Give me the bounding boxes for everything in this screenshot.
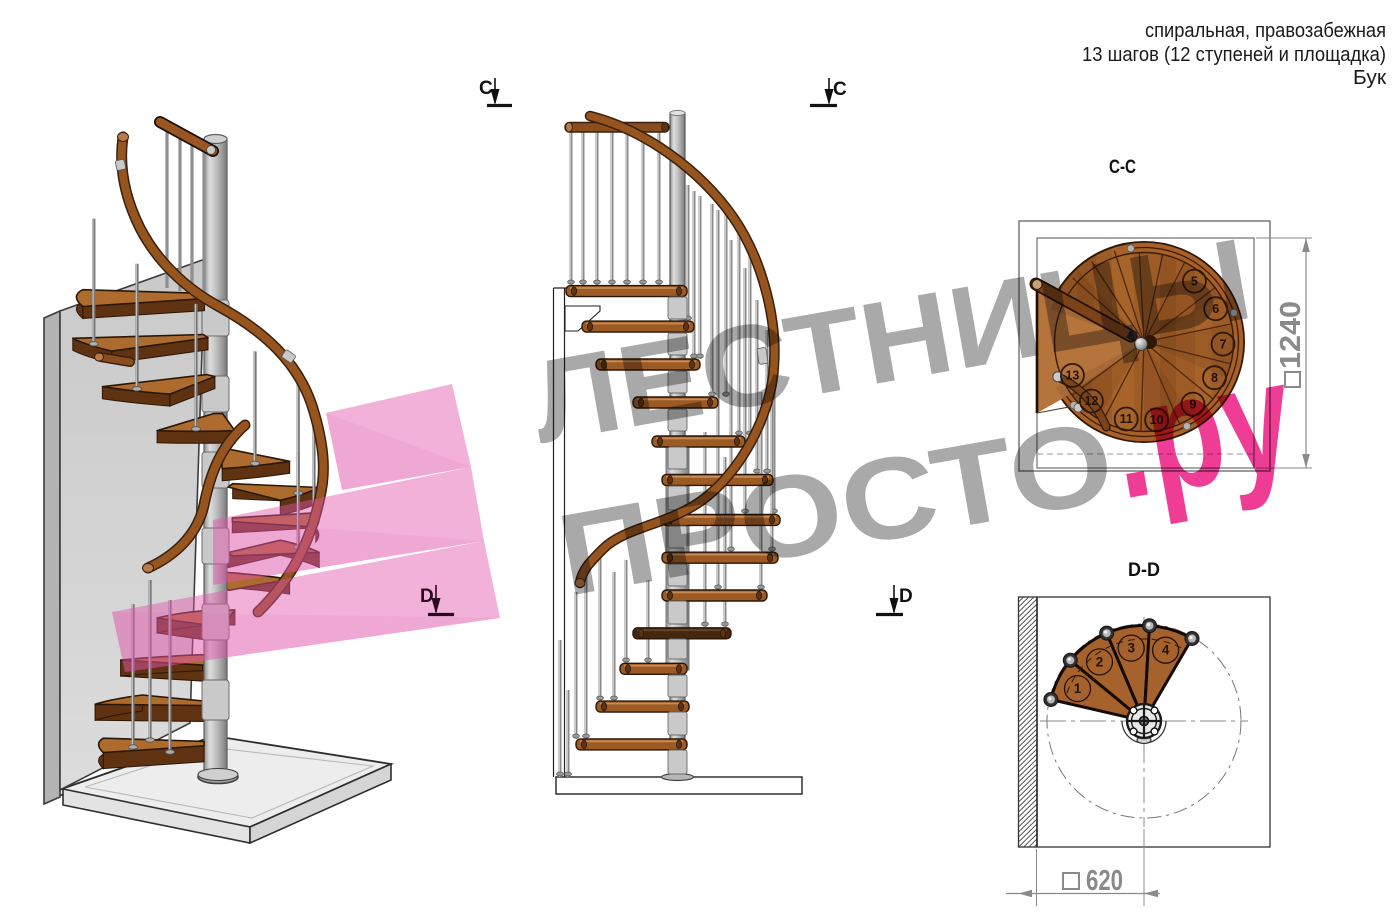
svg-text:D: D <box>420 586 434 607</box>
svg-text:Бук: Бук <box>1353 67 1386 89</box>
svg-text:620: 620 <box>1086 865 1123 897</box>
svg-text:C: C <box>479 78 493 99</box>
svg-text:1: 1 <box>1074 681 1082 696</box>
svg-text:C-C: C-C <box>1109 157 1136 178</box>
svg-text:.ру: .ру <box>1097 325 1305 533</box>
svg-text:4: 4 <box>1162 643 1170 658</box>
svg-text:13 шагов (12 ступеней и площад: 13 шагов (12 ступеней и площадка) <box>1082 44 1386 66</box>
svg-text:спиральная, правозабежная: спиральная, правозабежная <box>1145 20 1386 42</box>
svg-text:2: 2 <box>1096 654 1104 669</box>
svg-text:D-D: D-D <box>1128 560 1160 581</box>
svg-text:3: 3 <box>1127 641 1135 656</box>
svg-text:D: D <box>899 586 913 607</box>
svg-text:C: C <box>833 79 847 100</box>
